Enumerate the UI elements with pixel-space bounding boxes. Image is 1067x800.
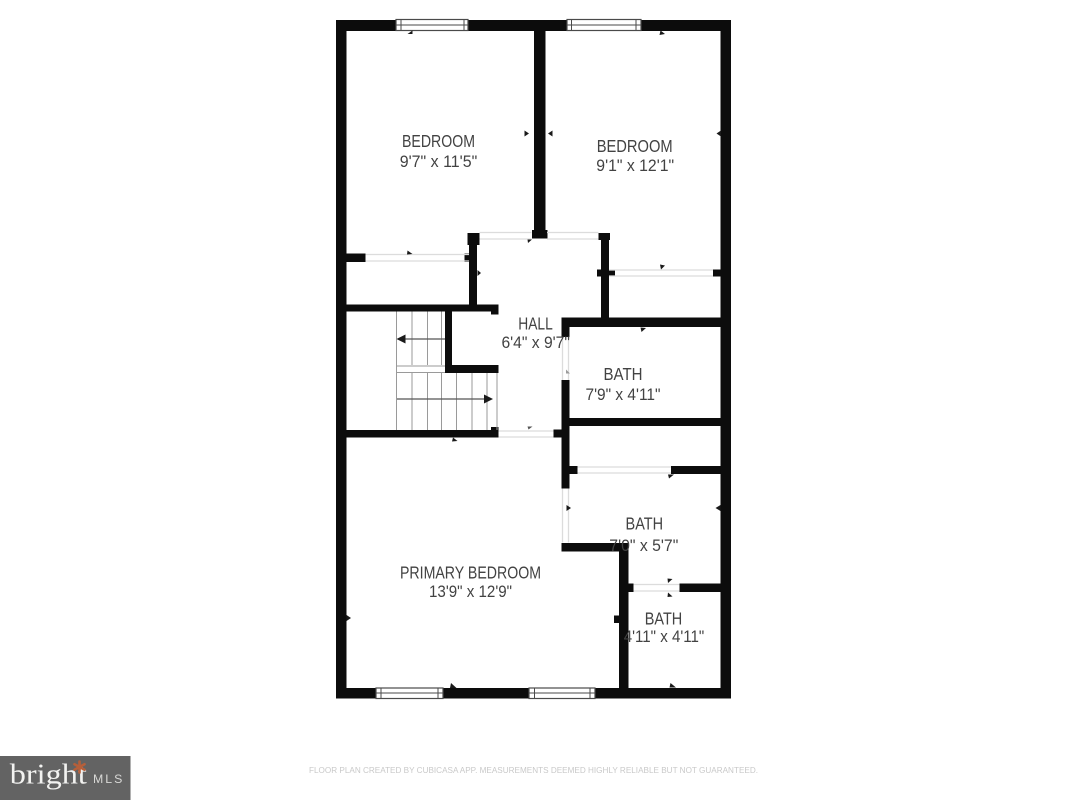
svg-text:MLS: MLS bbox=[93, 772, 124, 786]
svg-text:BATH: BATH bbox=[604, 364, 643, 384]
svg-text:4'11" x 4'11": 4'11" x 4'11" bbox=[624, 627, 705, 646]
svg-text:9'7" x 11'5": 9'7" x 11'5" bbox=[400, 152, 478, 171]
svg-text:9'1" x 12'1": 9'1" x 12'1" bbox=[596, 156, 674, 175]
svg-text:7'0" x 5'7": 7'0" x 5'7" bbox=[609, 536, 678, 555]
svg-text:FLOOR PLAN CREATED BY CUBICASA: FLOOR PLAN CREATED BY CUBICASA APP. MEAS… bbox=[309, 766, 758, 775]
svg-text:BEDROOM: BEDROOM bbox=[597, 136, 673, 156]
svg-text:PRIMARY BEDROOM: PRIMARY BEDROOM bbox=[400, 563, 541, 583]
svg-text:13'9" x 12'9": 13'9" x 12'9" bbox=[429, 582, 512, 601]
svg-text:BATH: BATH bbox=[645, 609, 683, 629]
svg-text:HALL: HALL bbox=[518, 314, 553, 334]
svg-text:BEDROOM: BEDROOM bbox=[402, 131, 475, 151]
svg-text:BATH: BATH bbox=[626, 514, 664, 534]
svg-text:6'4" x 9'7": 6'4" x 9'7" bbox=[501, 333, 570, 352]
svg-text:7'9" x 4'11": 7'9" x 4'11" bbox=[586, 385, 661, 404]
